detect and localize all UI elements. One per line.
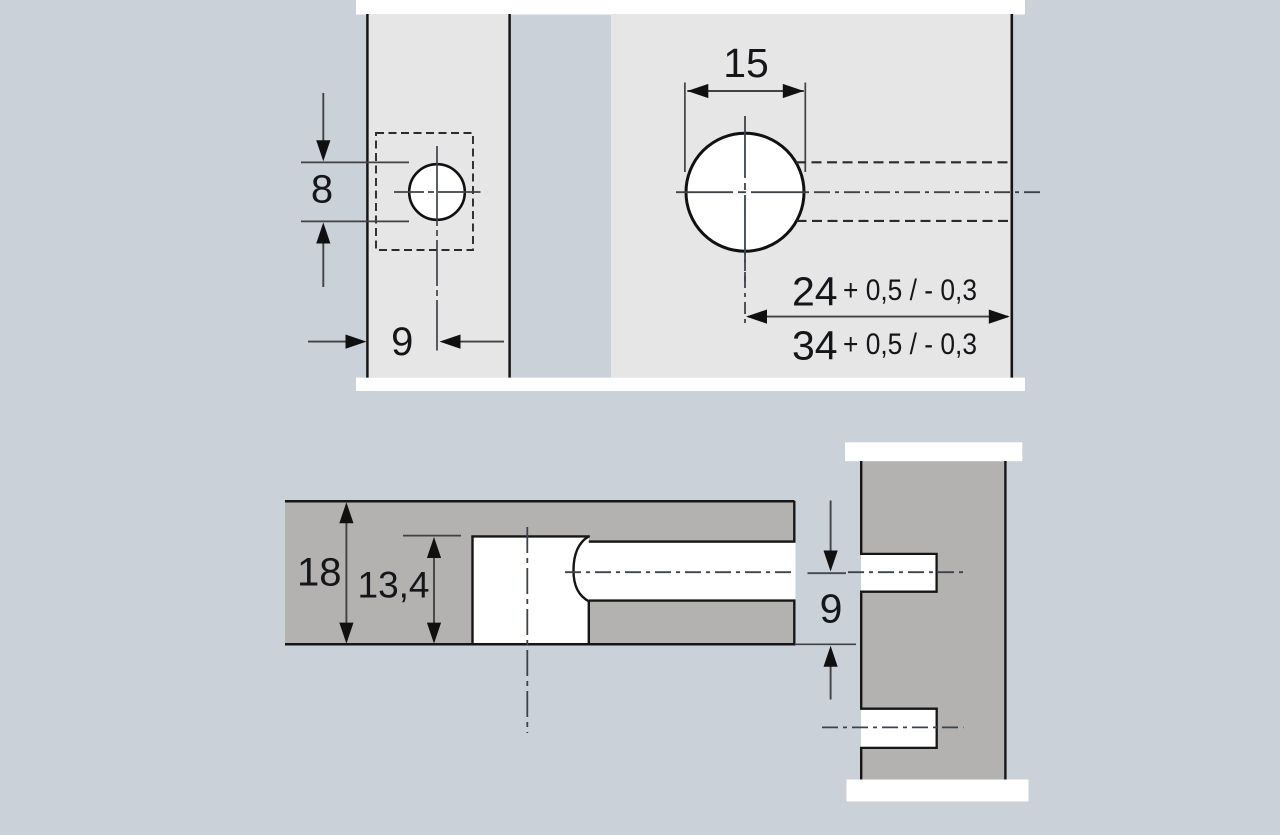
svg-text:8: 8: [311, 168, 333, 212]
svg-text:9: 9: [820, 586, 843, 632]
svg-text:+ 0,5 / - 0,3: + 0,5 / - 0,3: [843, 274, 977, 307]
svg-text:+ 0,5 / - 0,3: + 0,5 / - 0,3: [843, 328, 977, 361]
svg-text:13,4: 13,4: [358, 565, 430, 606]
svg-text:18: 18: [297, 550, 342, 594]
svg-text:34: 34: [792, 323, 838, 369]
svg-text:24: 24: [792, 269, 838, 315]
svg-text:15: 15: [723, 40, 769, 86]
svg-text:9: 9: [391, 320, 413, 364]
